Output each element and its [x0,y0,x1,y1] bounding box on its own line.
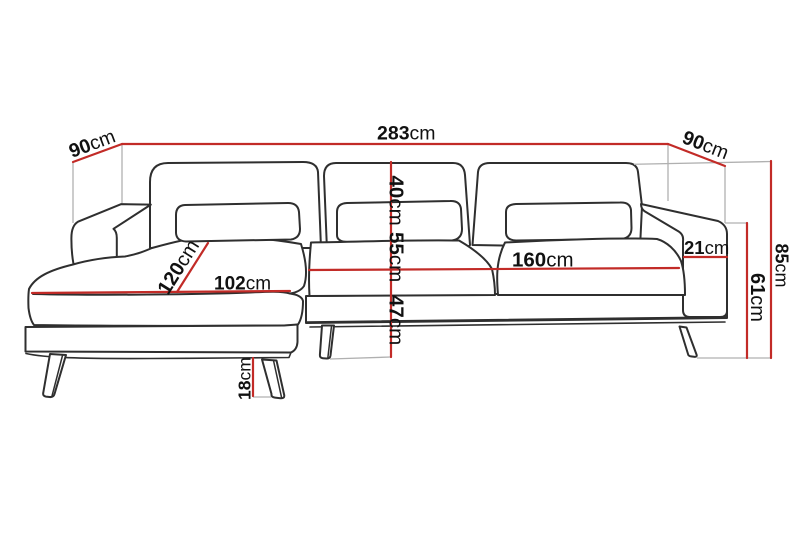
svg-text:21cm: 21cm [684,237,729,258]
svg-text:61cm: 61cm [746,273,768,322]
svg-text:55cm: 55cm [385,232,408,282]
svg-text:283cm: 283cm [377,123,436,145]
svg-text:18cm: 18cm [235,357,255,400]
svg-text:102cm: 102cm [214,274,271,295]
svg-text:47cm: 47cm [385,295,408,345]
svg-text:160cm: 160cm [512,249,574,272]
svg-text:85cm: 85cm [772,244,792,288]
svg-text:40cm: 40cm [385,176,408,226]
